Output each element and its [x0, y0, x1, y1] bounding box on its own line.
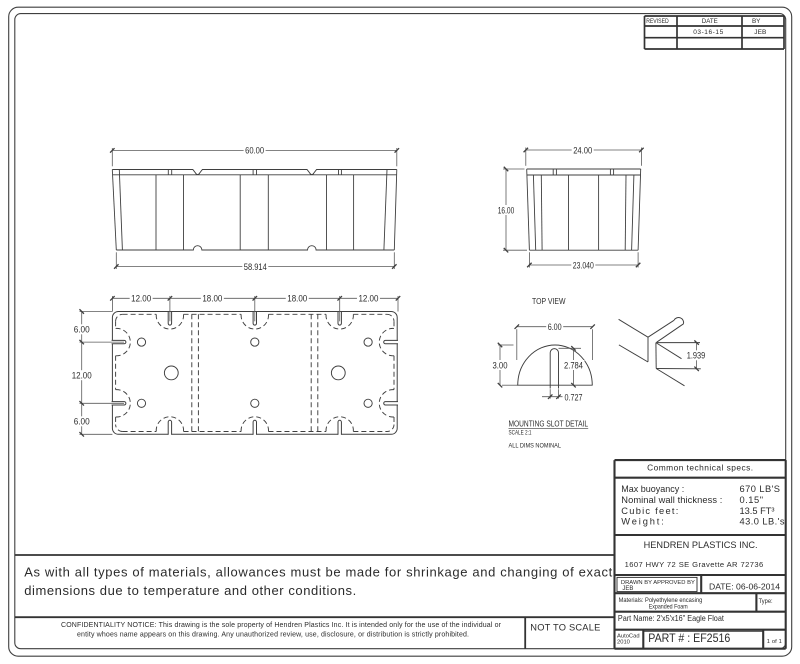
svg-text:3.00: 3.00	[493, 360, 508, 371]
svg-text:16.00: 16.00	[498, 205, 515, 216]
svg-text:23.040: 23.040	[573, 260, 594, 271]
svg-text:2010: 2010	[617, 640, 630, 646]
svg-text:Cubic feet:: Cubic feet:	[621, 506, 678, 516]
svg-text:6.00: 6.00	[74, 417, 90, 428]
svg-text:JEB: JEB	[622, 586, 633, 592]
svg-text:AutoCad: AutoCad	[617, 634, 640, 640]
svg-text:SCALE 2:1: SCALE 2:1	[509, 430, 532, 437]
svg-text:JEB: JEB	[754, 29, 766, 36]
svg-text:12.00: 12.00	[72, 371, 92, 382]
svg-text:24.00: 24.00	[573, 145, 592, 156]
svg-text:DATE: 06-06-2014: DATE: 06-06-2014	[709, 582, 780, 592]
svg-text:0.15": 0.15"	[740, 495, 764, 505]
svg-text:ALL DIMS NOMINAL: ALL DIMS NOMINAL	[509, 443, 562, 450]
svg-text:13.5 FT³: 13.5 FT³	[740, 506, 775, 516]
svg-text:MOUNTING SLOT DETAIL: MOUNTING SLOT DETAIL	[509, 418, 589, 428]
svg-text:60.00: 60.00	[245, 146, 264, 157]
svg-text:6.00: 6.00	[74, 325, 90, 336]
svg-text:Max buoyancy :: Max buoyancy :	[621, 484, 684, 494]
svg-text:dimensions due to temperature: dimensions due to temperature and other …	[24, 583, 356, 598]
svg-text:As with all types of materials: As with all types of materials, allowanc…	[24, 565, 612, 580]
svg-text:CONFIDENTIALITY NOTICE: This d: CONFIDENTIALITY NOTICE: This drawing is …	[61, 622, 502, 629]
svg-text:12.00: 12.00	[131, 294, 151, 305]
svg-text:18.00: 18.00	[202, 294, 222, 305]
svg-text:1 of 1: 1 of 1	[767, 639, 782, 645]
svg-text:Weight:: Weight:	[621, 516, 664, 526]
svg-text:58.914: 58.914	[244, 262, 267, 273]
svg-text:Type:: Type:	[759, 598, 773, 605]
svg-text:670 LB'S: 670 LB'S	[740, 484, 781, 494]
svg-text:Expanded Foam: Expanded Foam	[649, 604, 688, 610]
svg-text:12.00: 12.00	[358, 294, 378, 305]
svg-text:NOT TO SCALE: NOT TO SCALE	[530, 622, 600, 632]
svg-text:Materials: Polyethylene encas: Materials: Polyethylene encasing	[619, 597, 703, 604]
svg-text:Part Name: 2'x5'x16" Eagle F: Part Name: 2'x5'x16" Eagle Float	[618, 613, 725, 623]
svg-text:Nominal wall thickness :: Nominal wall thickness :	[621, 495, 722, 505]
svg-text:DATE: DATE	[702, 18, 719, 25]
svg-text:PART # : EF2516: PART # : EF2516	[648, 633, 730, 645]
svg-text:0.727: 0.727	[565, 392, 583, 403]
svg-text:18.00: 18.00	[287, 294, 307, 305]
svg-text:BY: BY	[752, 18, 761, 25]
svg-text:REVISED: REVISED	[646, 18, 669, 25]
svg-text:03-16-15: 03-16-15	[693, 29, 723, 36]
svg-text:6.00: 6.00	[548, 322, 562, 333]
svg-text:43.0 LB.'s: 43.0 LB.'s	[740, 516, 785, 526]
svg-text:1607 HWY 72 SE Gravette A: 1607 HWY 72 SE Gravette AR 72736	[625, 560, 764, 569]
svg-text:HENDREN PLASTICS INC.: HENDREN PLASTICS INC.	[644, 540, 758, 550]
svg-text:entity whoes name appears on t: entity whoes name appears on this drawin…	[77, 631, 469, 638]
svg-text:Common technical specs.: Common technical specs.	[647, 463, 753, 473]
svg-text:TOP VIEW: TOP VIEW	[532, 296, 566, 306]
svg-text:2.784: 2.784	[564, 360, 583, 371]
svg-text:1.939: 1.939	[687, 351, 706, 362]
